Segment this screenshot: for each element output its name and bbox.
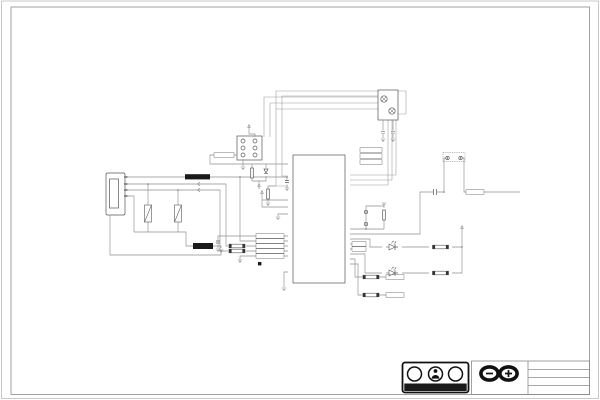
gnd-symbol [391,139,395,142]
schematic-sheet [0,0,600,400]
net-flag-stack [256,234,288,259]
resistor-rn4c [433,245,449,249]
usb-boot-jumper [350,203,386,230]
resistor-rd-plus [229,249,245,253]
sa-arrow-icon [449,367,463,381]
plus5v-arrow [258,184,261,189]
arduino-logo [481,367,517,380]
cc-license-badge [403,363,469,393]
varistor-z1 [145,205,152,222]
gnd-symbol [282,288,286,291]
by-person-icon [429,367,443,381]
cap-c4 [285,181,289,183]
resistor-rn4a [363,293,379,297]
resistor-rd-minus [229,244,245,248]
fuse-f1 [185,174,210,179]
cap-c10 [216,241,220,243]
plus5v-arrow [261,191,264,196]
ferrite-l1 [193,243,213,249]
usb-connector-x2 [106,173,127,215]
resistor-1k [251,168,254,178]
gnd-symbol [276,217,280,220]
gnd-symbol [266,203,270,206]
resistor-rn4b [363,275,379,279]
gnd-symbol [241,167,245,170]
diode-cd1206 [264,169,268,173]
plus5v-arrow [461,226,464,231]
varistor-z2 [175,205,182,222]
ground-pad [258,262,261,265]
schematic-canvas [0,0,600,400]
cc-icon [408,367,422,381]
icsp-header [237,136,262,160]
title-block [472,361,590,395]
serial-led-section [350,226,463,298]
plus5v-arrow [248,125,251,130]
ic4-atmega16u2 [293,155,345,283]
resistor-rn4d [433,271,449,275]
resistor-r2 [267,189,270,199]
gnd-symbol [381,139,385,142]
gnd-symbol [238,260,242,263]
crystal-y2 [378,90,398,120]
tx-led [386,241,398,250]
reset-circuit [350,153,520,235]
spi-net-flags [360,148,382,165]
gnd-symbol [285,188,289,191]
